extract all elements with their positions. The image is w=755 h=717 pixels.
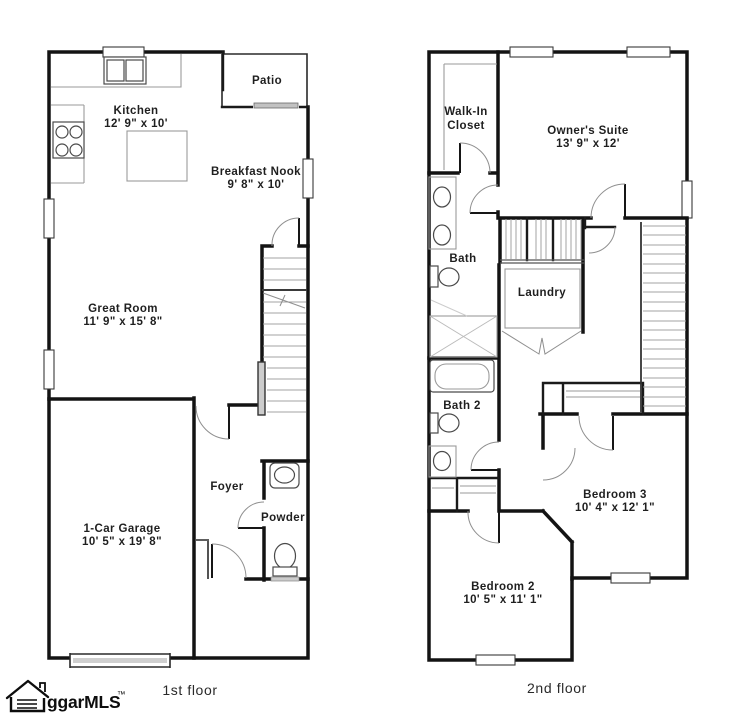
window [44,199,54,238]
shower-icon [430,300,497,357]
first-floor-doors [196,218,299,578]
window [103,47,144,57]
window [44,350,54,389]
bath2-door-swing [471,442,499,470]
house-icon [7,681,48,711]
sink-icon [434,452,451,471]
floor-plan-drawing: Patio Kitchen 12' 9" x 10' Breakfast Noo… [0,0,755,717]
first-floor-plan: Patio Kitchen 12' 9" x 10' Breakfast Noo… [44,47,313,698]
sink-icon [434,225,451,245]
kitchen-dims: 12' 9" x 10' [104,118,168,130]
hall-door-swing [543,448,575,480]
bath-door-swing [470,185,498,213]
suite-door-swing [591,184,625,218]
stair-treads [643,226,686,406]
stair-door-swing [272,218,299,246]
logo-text: ggarMLS [47,692,120,712]
owners-suite-label: Owner's Suite [547,125,628,137]
landing-door-swing [589,227,615,253]
first-floor-caption: 1st floor [162,682,217,698]
bedroom3-label: Bedroom 3 [583,489,647,501]
patio-label: Patio [252,75,282,87]
second-floor-caption: 2nd floor [527,680,587,696]
bath2-label: Bath 2 [443,400,481,412]
entry-nook-walls [196,540,209,579]
front-door-swing [212,544,246,578]
greatroom-door-swing [196,406,229,439]
bath2-fixtures [429,360,494,477]
bedroom2-closet-shelves [432,486,496,493]
great-room-label: Great Room [88,303,158,315]
bedroom2-dims: 10' 5" x 11' 1" [463,594,542,606]
window [627,47,670,57]
window [682,181,692,218]
bedroom3-door-swing [579,416,613,450]
logo-trademark: ™ [117,689,126,699]
stove-icon [53,122,84,158]
breakfast-nook-label: Breakfast Nook [211,166,301,178]
bedroom2-door-swing [468,511,499,543]
walkin-closet-label-2: Closet [447,120,485,132]
stair-rail [258,362,265,415]
staircase [258,258,307,415]
exterior-walls [49,52,308,658]
window [303,159,313,198]
bath-label: Bath [449,253,476,265]
stair-treads-vertical [506,219,581,259]
foyer-label: Foyer [210,481,243,493]
kitchen-island [127,131,187,181]
bedroom3-dims: 10' 4" x 12' 1" [575,502,655,514]
bath-fixtures [429,177,497,357]
laundry-label: Laundry [518,287,566,299]
breakfast-nook-dims: 9' 8" x 10' [228,179,285,191]
bedroom3-closet-shelves [566,391,640,397]
window [476,655,515,665]
bedroom2-label: Bedroom 2 [471,581,535,593]
staircase [641,222,686,412]
bathtub-icon [430,360,494,392]
sink-icon [434,187,451,207]
garage-dims: 10' 5" x 19' 8" [82,536,162,548]
laundry-area [502,269,581,354]
toilet-icon [271,544,299,582]
powder-label: Powder [261,512,305,524]
garage-door-icon [70,653,170,668]
window [611,573,650,583]
floor-plan-page: Patio Kitchen 12' 9" x 10' Breakfast Noo… [0,0,755,717]
stair-treads [263,258,306,412]
stair-direction-arrow [263,293,305,308]
toilet-icon [430,266,459,287]
great-room-dims: 11' 9" x 15' 8" [83,316,162,328]
stair-upper-flight [500,219,585,263]
sliding-door-icon [254,103,298,108]
walkin-closet-door-swing [460,143,490,173]
owners-suite-dims: 13' 9" x 12' [556,138,620,150]
garage-door-panel [73,658,167,663]
second-floor-plan: Walk-In Closet Owner's Suite 13' 9" x 12… [429,47,692,696]
toilet-icon [430,413,459,433]
bifold-doors [502,331,581,354]
kitchen-sink-icon [104,57,146,84]
window [510,47,553,57]
mls-logo: ggarMLS ™ [7,681,126,712]
first-floor-windows [44,47,313,389]
kitchen-label: Kitchen [114,105,159,117]
garage-label: 1-Car Garage [83,523,160,535]
pedestal-sink-icon [270,463,299,488]
stair-rail-line [500,260,585,263]
walkin-closet-label-1: Walk-In [444,106,487,118]
